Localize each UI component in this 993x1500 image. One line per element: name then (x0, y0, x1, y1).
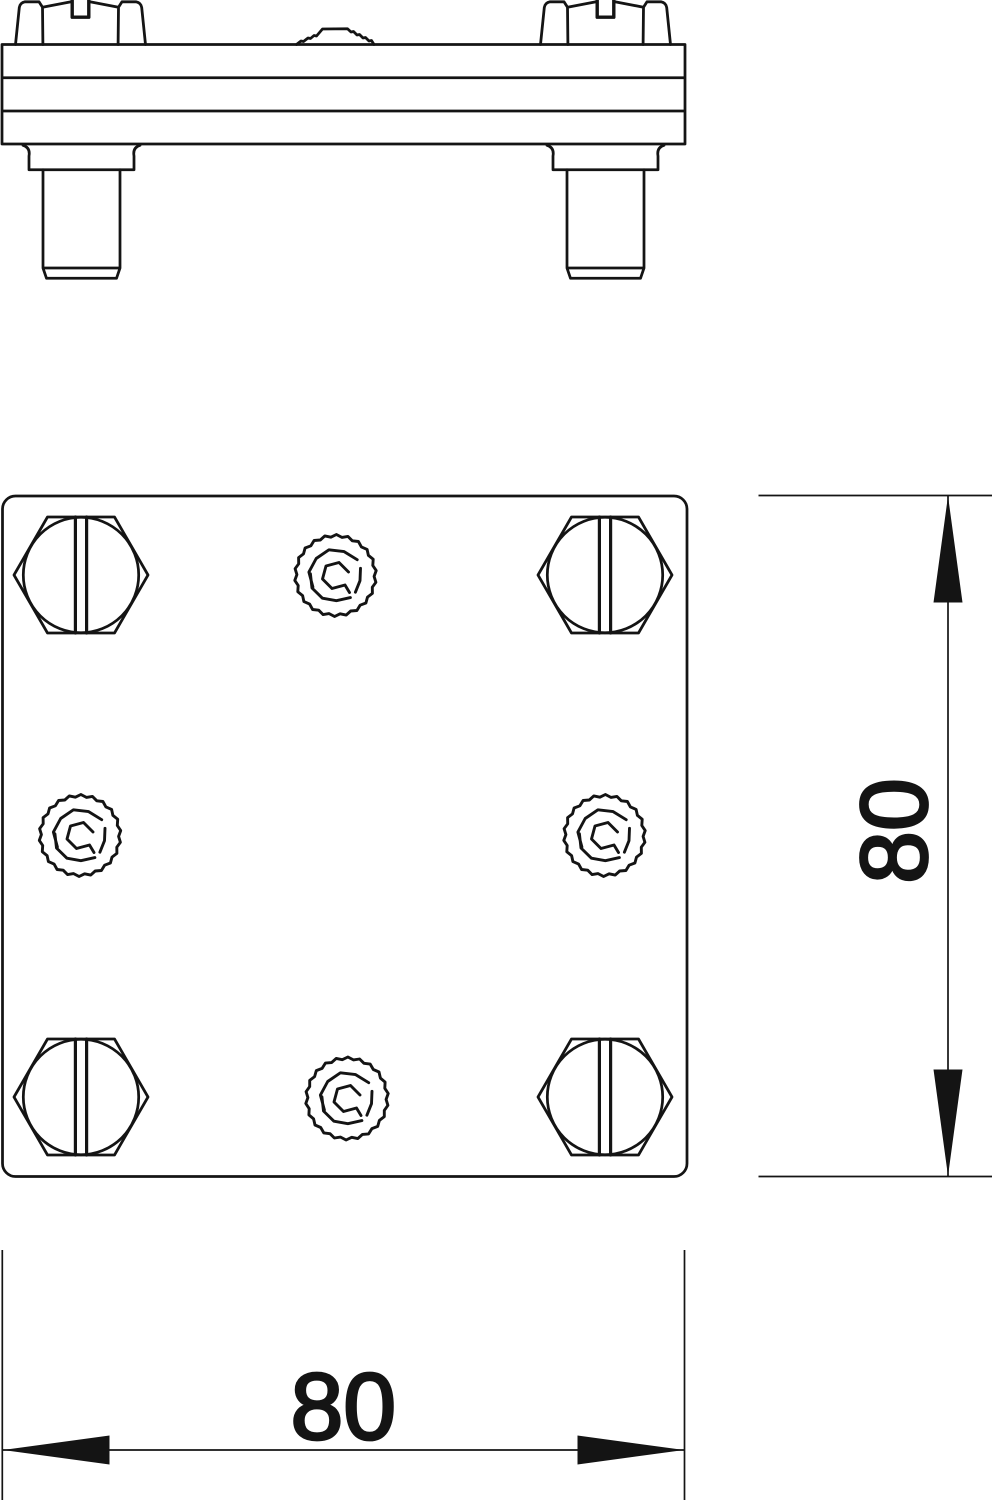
svg-text:80: 80 (842, 778, 948, 884)
svg-text:80: 80 (290, 1354, 396, 1460)
